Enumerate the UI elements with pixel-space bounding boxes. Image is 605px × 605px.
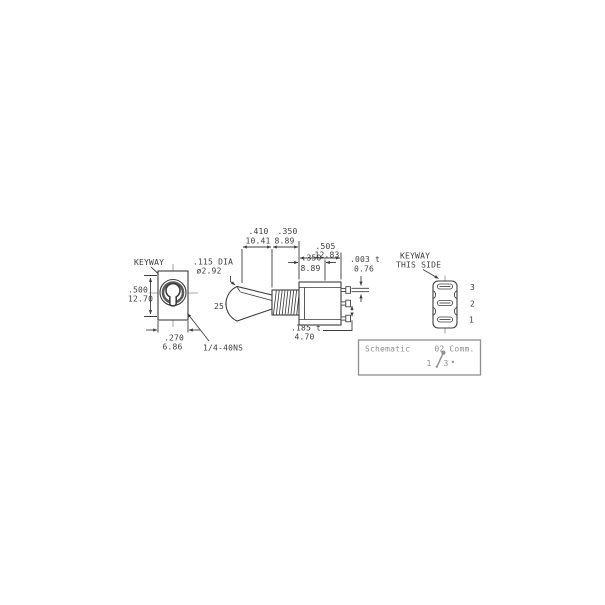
terminal-spacing-in: .185 t <box>291 324 321 333</box>
pin-label-2: 2 <box>470 300 475 309</box>
terminal-slot-2 <box>438 301 453 306</box>
height-dim-in: .500 <box>128 286 148 295</box>
lever-dia-leader <box>231 276 236 285</box>
mount-dim-mm: 8.89 <box>300 264 320 273</box>
thread-callout: 1/4-40NS <box>203 344 243 353</box>
terminal-pin-2 <box>341 300 351 307</box>
side-view: .115 DIA ø2.92 25° <box>193 227 380 342</box>
lever-dim-in: .410 <box>248 227 268 236</box>
pin-label-3: 3 <box>470 283 475 292</box>
schematic-contact-dot: • <box>451 358 456 367</box>
bushing-dim-mm: 8.89 <box>274 237 294 246</box>
terminal-thickness-in: .003 t <box>350 255 380 264</box>
height-dim-mm: 12.70 <box>128 295 153 304</box>
terminal-slot-1 <box>438 317 453 322</box>
terminal-view: KEYWAY THIS SIDE 3 2 1 <box>396 252 475 334</box>
keyway-note-line2: THIS SIDE <box>396 261 441 270</box>
mount-dim-in: .350 <box>301 254 321 263</box>
toggle-lever <box>226 287 272 322</box>
keyway-label: KEYWAY <box>134 258 164 267</box>
schematic-lever-ball <box>441 351 445 355</box>
lever-dia-mm: ø2.92 <box>197 267 222 276</box>
schematic-terminal-1: 1 <box>427 359 432 368</box>
lever-dia-in: .115 DIA <box>193 258 233 267</box>
terminal-thickness-mm: 0.76 <box>354 265 374 274</box>
thread-leader-arrow <box>188 314 210 342</box>
bushing-dim-in: .350 <box>277 227 297 236</box>
terminal-spacing-mm: 4.70 <box>294 333 314 342</box>
width-dim-mm: 6.86 <box>162 343 182 352</box>
width-dim-in: .270 <box>164 334 184 343</box>
switch-body <box>299 282 341 325</box>
keyway-note-line1: KEYWAY <box>400 252 430 261</box>
lever-dim-mm: 10.41 <box>245 237 270 246</box>
schematic-common-note: 02 Comm. <box>434 345 474 354</box>
terminal-slot-3 <box>438 284 453 289</box>
engineering-drawing-canvas: KEYWAY .500 12.70 .270 6.86 1/4-40NS .11… <box>0 0 605 605</box>
thickness-tick-lines <box>352 288 370 291</box>
schematic-pivot-dot <box>436 366 438 368</box>
pin-label-1: 1 <box>469 316 474 325</box>
keyway-note-arrow <box>423 270 439 279</box>
terminal-pin-1 <box>341 287 351 294</box>
schematic-title: Schematic <box>365 345 410 354</box>
schematic-terminal-3: 3 <box>444 359 449 368</box>
toggle-switch-drawing: KEYWAY .500 12.70 .270 6.86 1/4-40NS .11… <box>0 0 605 605</box>
terminal-pin-3 <box>341 315 351 322</box>
schematic-box: Schematic 02 Comm. 1 3 • <box>359 340 481 375</box>
